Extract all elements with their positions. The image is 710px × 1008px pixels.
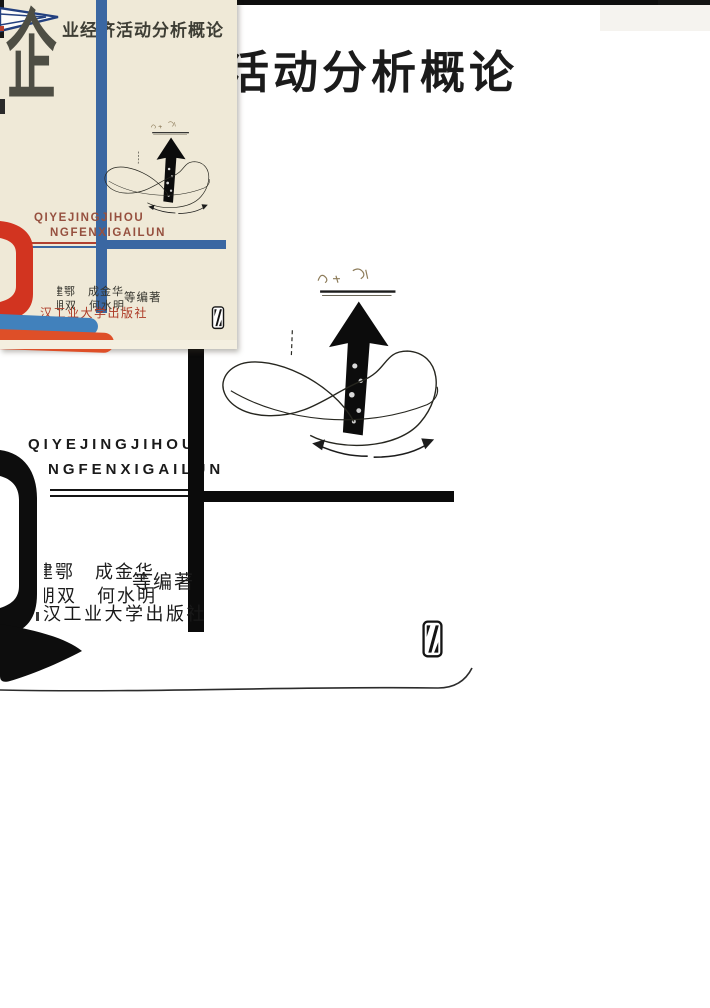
thumb-arrow-loops-artwork bbox=[100, 119, 216, 217]
publisher-name: 汉工业大学出版社 bbox=[43, 600, 207, 626]
scan-paper-tint bbox=[600, 5, 710, 31]
publisher-logo bbox=[422, 620, 443, 659]
double-rule-top bbox=[50, 489, 190, 491]
publisher-cut-fragment bbox=[36, 612, 39, 621]
thumb-authors-suffix: 等编著 bbox=[124, 289, 162, 305]
authors-suffix: 等编著 bbox=[132, 567, 195, 594]
thumb-authors-line-1-text: 建鄂 成金华 bbox=[57, 283, 124, 297]
thumb-pinyin-line-2: NGFENXIGAILUN bbox=[50, 227, 166, 239]
thumb-title: 业经济活动分析概论 bbox=[62, 16, 224, 41]
pinyin-line-1: QIYEJINGJIHOU bbox=[28, 436, 197, 453]
thumb-publisher-logo bbox=[211, 306, 225, 330]
color-cover-thumbnail: 企 业经济活动分析概论 QIYEJINGJIHOU NGFENXIGAILUN … bbox=[0, 0, 237, 349]
cover-bottom-edge-line bbox=[0, 662, 478, 696]
thumb-horizontal-blue-bar bbox=[107, 240, 226, 249]
horizontal-black-bar bbox=[197, 491, 454, 502]
book-title-partial: 活动分析概论 bbox=[224, 36, 518, 101]
thumb-big-character: 企 bbox=[6, 8, 56, 107]
arrow-loops-artwork bbox=[213, 264, 451, 464]
double-rule-bottom bbox=[50, 495, 190, 497]
scanned-book-cover-page: { "scan": { "title": "活动分析概论", "pinyin_l… bbox=[0, 0, 710, 1008]
letterform-zero-fragment bbox=[0, 448, 42, 638]
thumb-red-zero-fragment bbox=[0, 220, 37, 323]
thumb-pinyin-line-1: QIYEJINGJIHOU bbox=[34, 212, 144, 224]
thumb-bottom-paper-edge bbox=[0, 340, 237, 349]
thumb-edge-mark-mid bbox=[0, 99, 5, 114]
